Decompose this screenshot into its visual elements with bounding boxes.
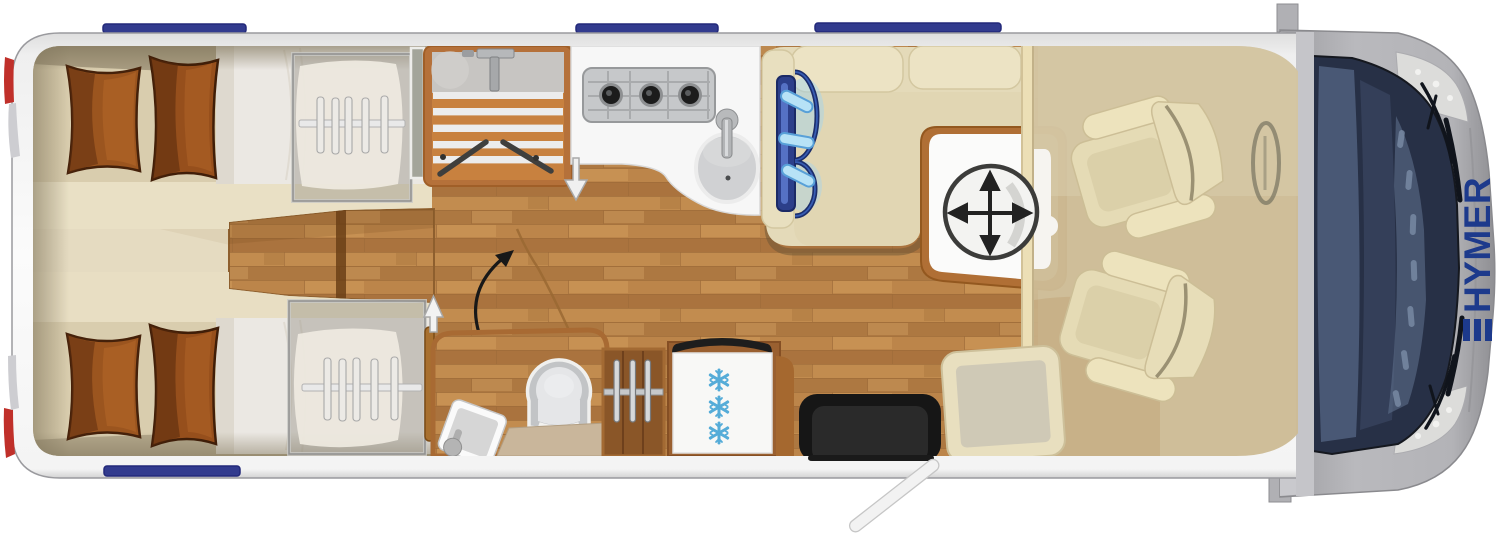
svg-text:HYMER: HYMER xyxy=(1457,177,1498,313)
